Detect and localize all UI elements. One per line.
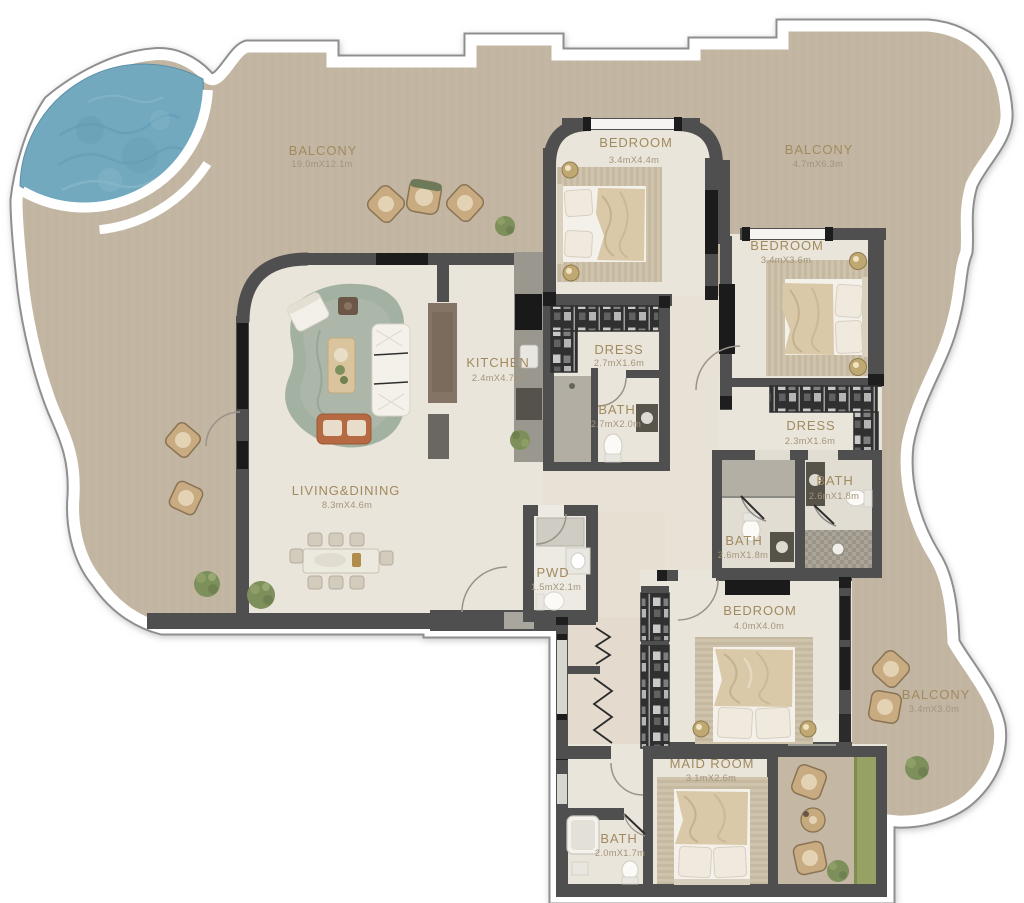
- svg-text:2.0mX1.7m: 2.0mX1.7m: [595, 848, 645, 858]
- svg-text:2.7mX2.0m: 2.7mX2.0m: [591, 419, 641, 429]
- svg-text:KITCHEN: KITCHEN: [466, 355, 529, 370]
- svg-text:4.7mX6.3m: 4.7mX6.3m: [793, 159, 843, 169]
- svg-text:2.7mX1.6m: 2.7mX1.6m: [594, 358, 644, 368]
- svg-text:1.5mX2.1m: 1.5mX2.1m: [531, 582, 581, 592]
- svg-text:BALCONY: BALCONY: [785, 142, 853, 157]
- svg-text:BALCONY: BALCONY: [902, 687, 970, 702]
- svg-text:BATH: BATH: [598, 402, 635, 417]
- svg-text:4.0mX4.0m: 4.0mX4.0m: [734, 621, 784, 631]
- svg-text:BALCONY: BALCONY: [289, 143, 357, 158]
- svg-text:BEDROOM: BEDROOM: [599, 135, 672, 150]
- svg-text:3.4mX3.6m: 3.4mX3.6m: [761, 255, 811, 265]
- svg-text:2.3mX1.6m: 2.3mX1.6m: [785, 436, 835, 446]
- svg-text:MAID ROOM: MAID ROOM: [670, 756, 755, 771]
- svg-text:2.6mX1.8m: 2.6mX1.8m: [718, 550, 768, 560]
- svg-text:2.6mX1.8m: 2.6mX1.8m: [809, 491, 859, 501]
- svg-text:3.1mX2.6m: 3.1mX2.6m: [686, 773, 736, 783]
- svg-text:DRESS: DRESS: [786, 418, 835, 433]
- svg-text:19.0mX12.1m: 19.0mX12.1m: [291, 159, 352, 169]
- svg-text:DRESS: DRESS: [594, 342, 643, 357]
- svg-text:PWD: PWD: [536, 565, 569, 580]
- svg-text:2.4mX4.7m: 2.4mX4.7m: [472, 373, 522, 383]
- svg-text:3.4mX4.4m: 3.4mX4.4m: [609, 155, 659, 165]
- svg-text:BATH: BATH: [816, 473, 853, 488]
- svg-text:BATH: BATH: [725, 533, 762, 548]
- svg-text:BATH: BATH: [600, 831, 637, 846]
- svg-text:BEDROOM: BEDROOM: [723, 603, 796, 618]
- svg-text:3.4mX3.0m: 3.4mX3.0m: [909, 704, 959, 714]
- svg-text:BEDROOM: BEDROOM: [750, 238, 823, 253]
- svg-text:8.3mX4.6m: 8.3mX4.6m: [322, 500, 372, 510]
- svg-text:LIVING&DINING: LIVING&DINING: [292, 483, 401, 498]
